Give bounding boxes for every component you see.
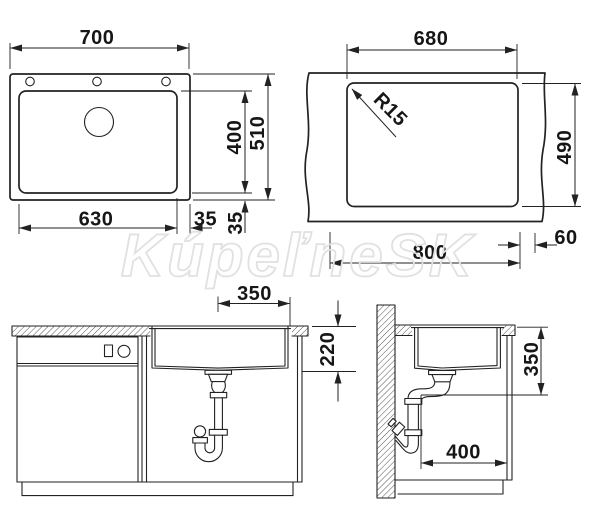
sink-bowl-outline bbox=[19, 91, 177, 193]
control-panel-knob bbox=[118, 345, 130, 357]
control-panel-button bbox=[105, 345, 113, 357]
sink-bowl-section bbox=[415, 328, 501, 371]
pipe-nut-upper bbox=[405, 399, 422, 405]
dishwasher-cabinet bbox=[17, 337, 138, 482]
watermark-text: KúpeľneSK bbox=[121, 222, 476, 289]
countertop-hatch-left bbox=[12, 326, 150, 336]
pipe-nut-middle bbox=[209, 429, 227, 435]
dim-label-bowl-depth: 220 bbox=[317, 332, 339, 367]
tailpiece-pipe-lower bbox=[215, 435, 223, 448]
dim-label-cutout-width: 680 bbox=[414, 28, 449, 50]
dim-label-edge-offset: 60 bbox=[554, 227, 577, 249]
faucet-hole-right bbox=[162, 77, 171, 86]
cabinets bbox=[17, 336, 302, 496]
sink-dimension-drawing: 700 630 35 400 510 35 680 R15 490 800 60 bbox=[0, 0, 600, 510]
tailpiece-pipe bbox=[215, 398, 223, 430]
side-section-view: 350 400 bbox=[377, 305, 548, 498]
dim-label-min-depth: 400 bbox=[446, 442, 481, 464]
drain-hole bbox=[85, 108, 114, 137]
faucet-hole-center bbox=[93, 77, 102, 86]
countertop-hatch-left bbox=[395, 325, 412, 336]
drain-trap-assembly bbox=[193, 370, 232, 461]
trap-u-bend bbox=[195, 443, 222, 462]
sink-top-view: 700 630 35 400 510 35 bbox=[10, 27, 275, 235]
pipe-nut-lower bbox=[405, 430, 422, 436]
drain-elbow bbox=[212, 382, 226, 393]
countertop-hatch-right bbox=[292, 326, 308, 336]
drain-flange bbox=[429, 370, 456, 374]
pipe-nut-upper bbox=[210, 392, 226, 397]
dim-label-bowl-width: 630 bbox=[79, 209, 114, 231]
trap-cap bbox=[194, 426, 205, 437]
drain-body bbox=[209, 374, 228, 381]
front-section-view: 350 220 bbox=[12, 283, 356, 496]
wall-hatch bbox=[377, 305, 395, 498]
dim-label-bowl-height: 400 bbox=[224, 120, 246, 155]
technical-drawing-canvas: 700 630 35 400 510 35 680 R15 490 800 60 bbox=[0, 0, 600, 510]
sink-bowl-section bbox=[152, 326, 288, 370]
trap-bend bbox=[395, 436, 418, 453]
dim-label-width: 700 bbox=[80, 27, 115, 49]
drain-body bbox=[432, 375, 453, 382]
countertop-hatch-right bbox=[502, 325, 515, 336]
trap-nut bbox=[193, 438, 208, 443]
dim-label-drain-height: 350 bbox=[521, 342, 543, 377]
faucet-hole-left bbox=[26, 77, 35, 86]
drain-flange bbox=[205, 370, 232, 374]
cabinet-side-and-plinth bbox=[395, 336, 512, 495]
dim-label-cutout-height: 490 bbox=[554, 130, 576, 165]
dim-label-total-height: 510 bbox=[247, 116, 269, 151]
cabinet-plinth bbox=[17, 482, 302, 496]
